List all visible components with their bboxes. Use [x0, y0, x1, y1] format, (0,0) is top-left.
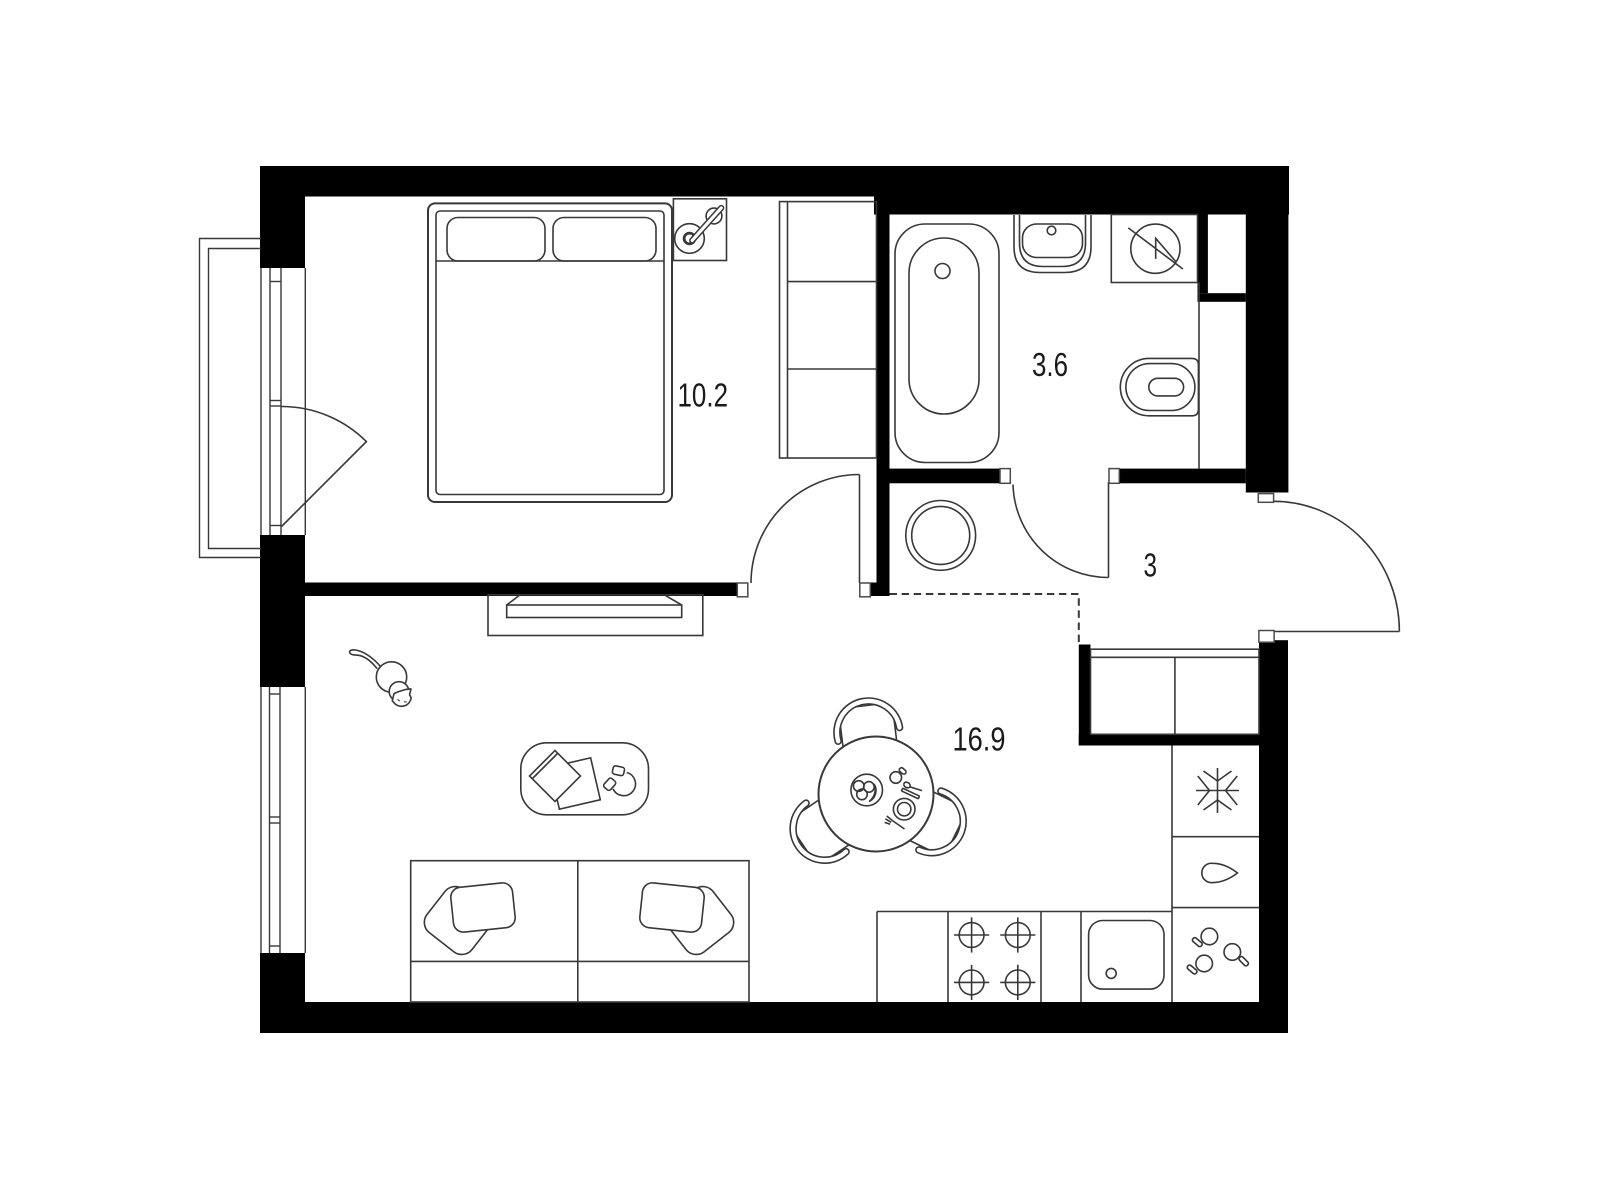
svg-text:10.2: 10.2 — [678, 377, 729, 414]
svg-text:3: 3 — [1144, 547, 1158, 584]
svg-text:16.9: 16.9 — [953, 721, 1006, 758]
svg-text:3.6: 3.6 — [1032, 346, 1068, 383]
